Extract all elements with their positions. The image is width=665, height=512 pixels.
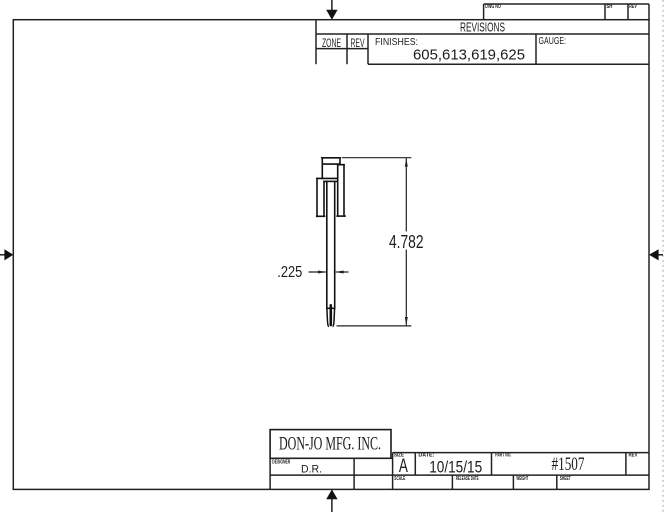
svg-text:PART NO.: PART NO. — [495, 452, 511, 458]
svg-text:605,613,619,625: 605,613,619,625 — [413, 47, 525, 64]
svg-text:REVISIONS: REVISIONS — [460, 21, 505, 35]
svg-text:.225: .225 — [277, 264, 302, 281]
svg-text:ZONE: ZONE — [322, 38, 341, 50]
svg-text:#1507: #1507 — [552, 454, 585, 475]
svg-text:D.R.: D.R. — [301, 464, 322, 476]
svg-text:10/15/15: 10/15/15 — [429, 457, 482, 476]
svg-text:SHEET: SHEET — [560, 476, 571, 482]
svg-text:WEIGHT: WEIGHT — [516, 476, 528, 482]
svg-text:FINISHES:: FINISHES: — [375, 36, 418, 48]
svg-text:SH: SH — [606, 4, 612, 10]
svg-text:GAUGE:: GAUGE: — [539, 35, 567, 47]
svg-text:RELEASE DATE: RELEASE DATE — [456, 476, 479, 482]
svg-text:REV: REV — [629, 4, 637, 10]
svg-text:4.782: 4.782 — [389, 231, 424, 252]
svg-text:DON-JO MFG. INC.: DON-JO MFG. INC. — [279, 435, 381, 455]
svg-text:DWG NO: DWG NO — [485, 4, 501, 10]
svg-text:REV: REV — [629, 452, 639, 458]
svg-text:SCALE: SCALE — [394, 476, 405, 482]
svg-text:DESIGNER: DESIGNER — [272, 459, 290, 465]
svg-text:REV: REV — [351, 38, 365, 50]
svg-text:A: A — [399, 455, 408, 477]
